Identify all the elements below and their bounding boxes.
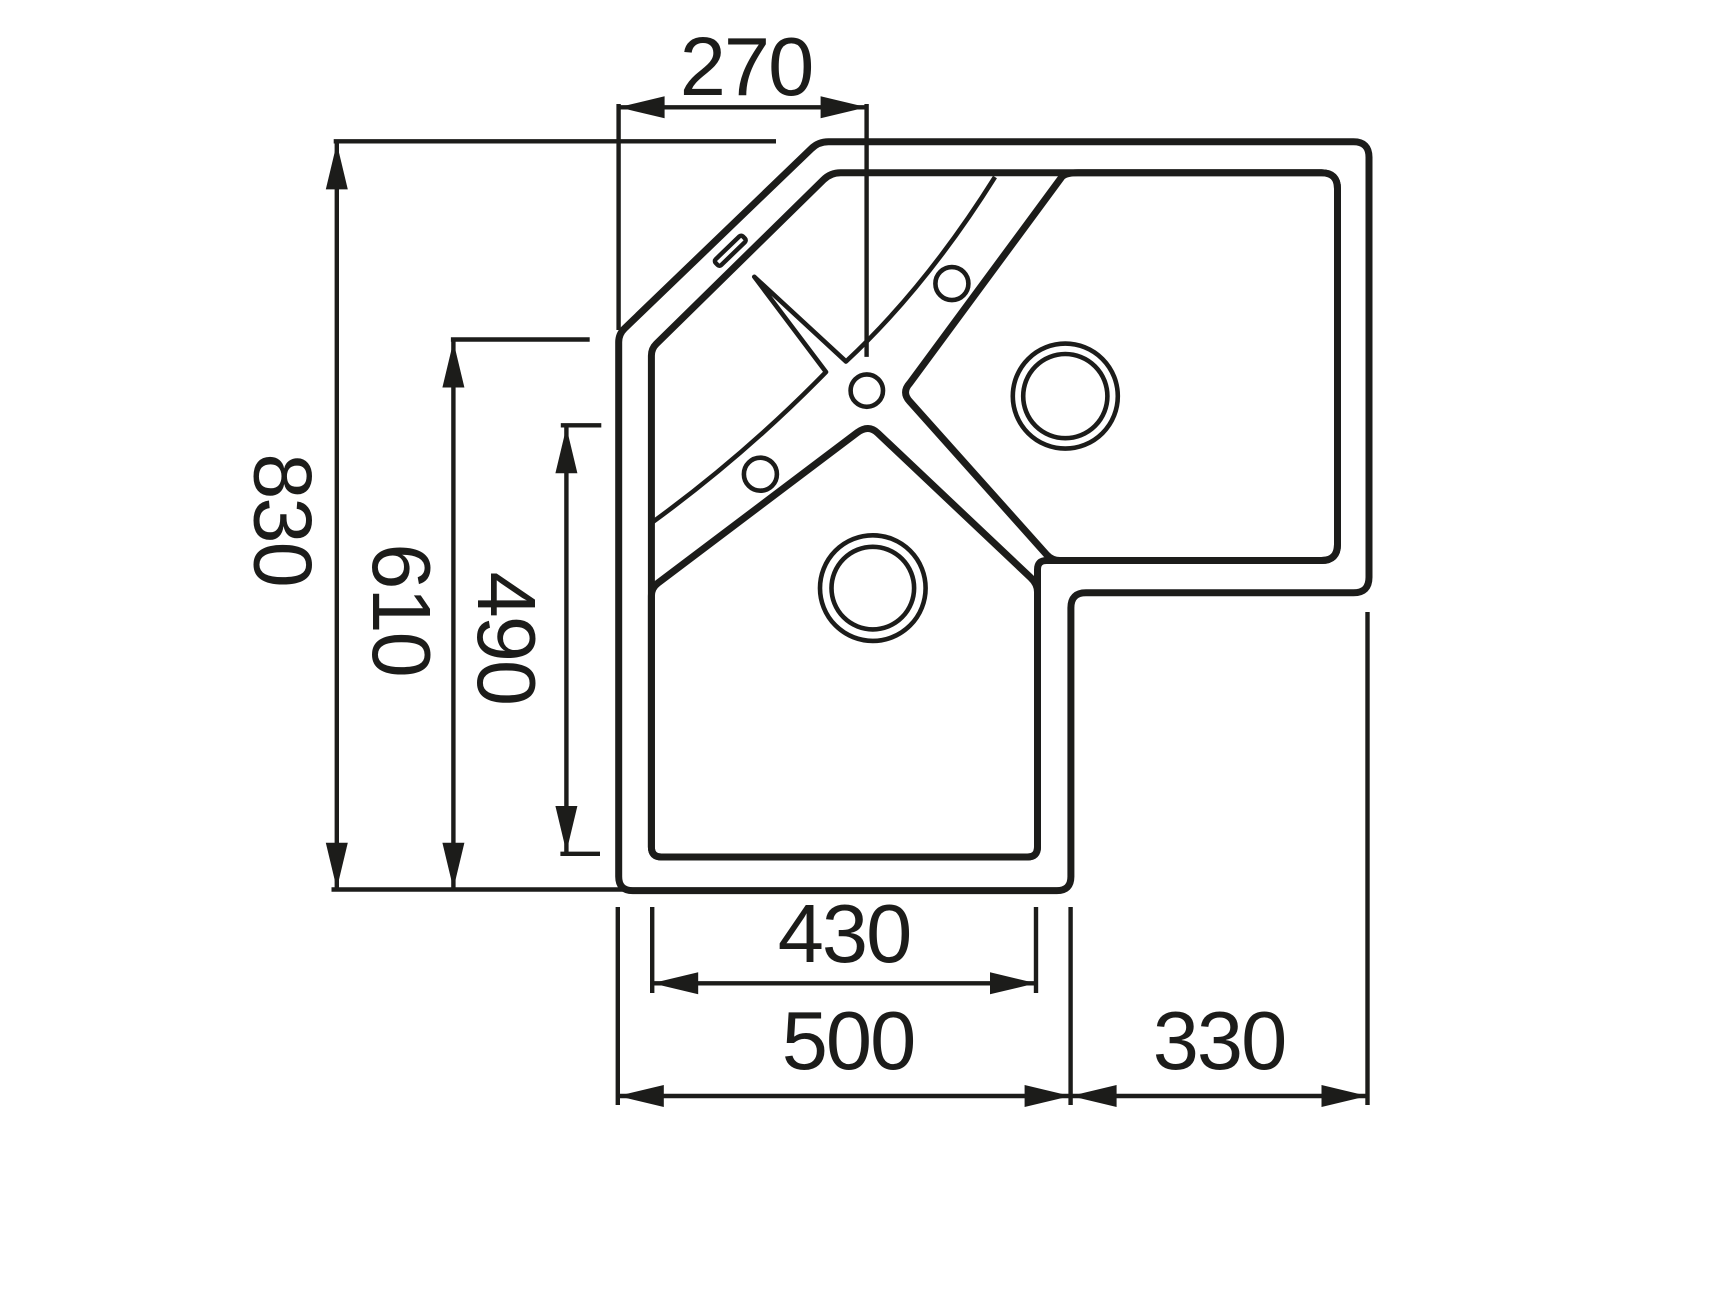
svg-text:490: 490: [460, 572, 553, 704]
svg-text:830: 830: [237, 453, 330, 585]
svg-text:330: 330: [1153, 994, 1285, 1087]
svg-text:270: 270: [680, 20, 812, 113]
svg-text:500: 500: [782, 994, 914, 1087]
svg-text:610: 610: [355, 543, 448, 675]
svg-text:430: 430: [778, 887, 910, 980]
